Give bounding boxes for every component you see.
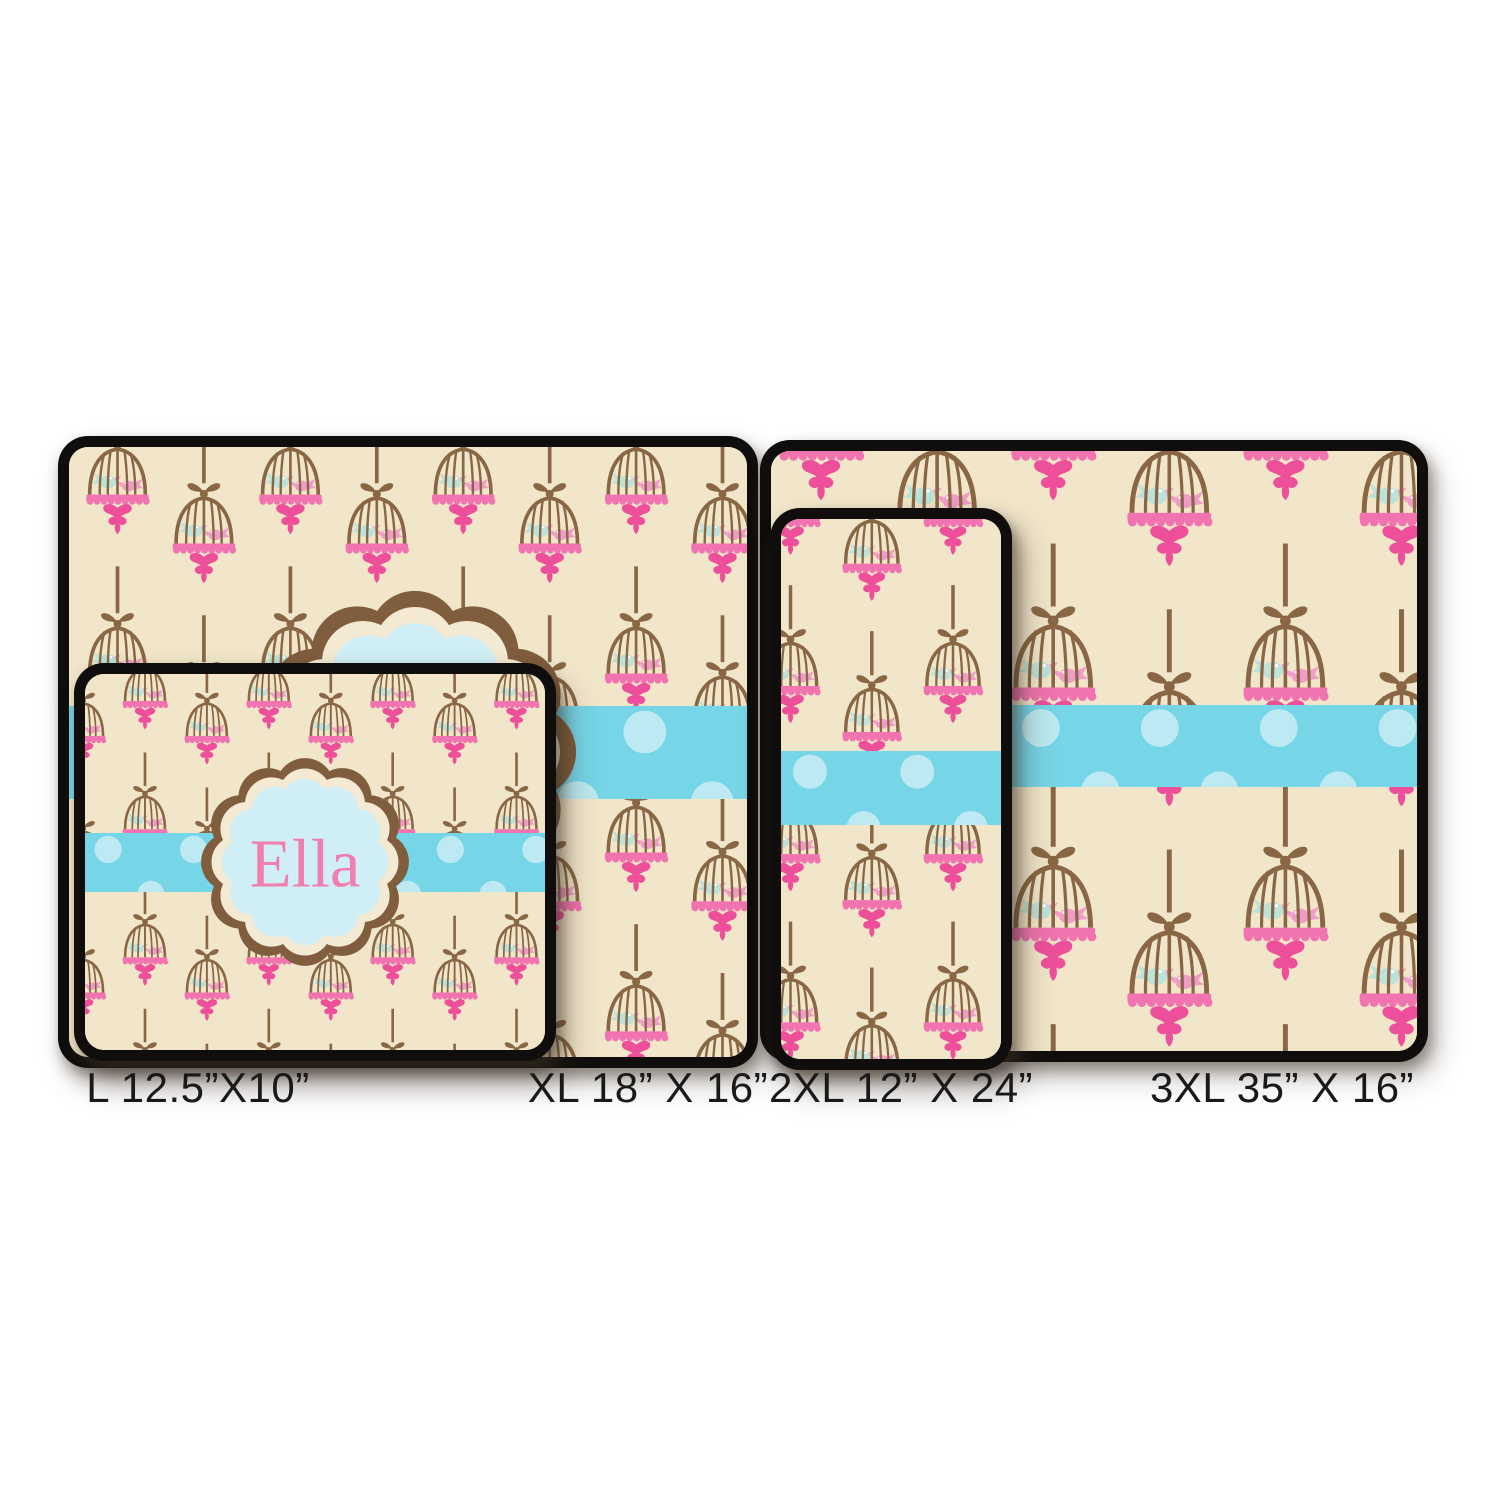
mat-preview-size-2xl: [770, 508, 1012, 1070]
mat-preview-size-l: Ella: [74, 663, 556, 1061]
mat-design: [781, 519, 1001, 1059]
size-label-l: L 12.5”X10”: [86, 1064, 309, 1112]
mat-surface: Ella: [85, 674, 545, 1050]
mat-surface: [781, 519, 1001, 1059]
size-label-3xl: 3XL 35” X 16”: [1150, 1064, 1414, 1112]
size-label-xl: XL 18” X 16”: [528, 1064, 768, 1112]
product-preview-canvas: Ella L 12.5”X10” XL 18” X 16” 2XL 12” X …: [0, 0, 1500, 1500]
mat-design: Ella: [85, 674, 545, 1050]
size-label-2xl: 2XL 12” X 24”: [769, 1064, 1033, 1112]
personalized-name-text: Ella: [249, 826, 360, 902]
